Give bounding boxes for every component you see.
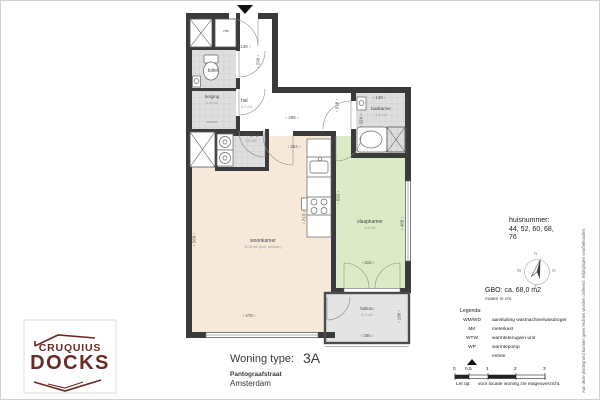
room-area: 30,8 m2 (incl. keuken) (223, 245, 303, 250)
woning-type-label: Woning type: (230, 353, 294, 365)
room-area: 8,0 m2 (241, 105, 271, 110)
legend-row: WTW warmteterugwin-unit (456, 334, 584, 343)
floorplan-sheet: hal 8,0 m2 toilet mk berging 1,4 m2 wm/w… (0, 0, 600, 400)
huisnummer-block: huisnummer: 44, 52, 60, 68, 76 (509, 217, 583, 243)
legend-row: WM/WD aansluiting wasmachine/wasdroger (456, 316, 584, 325)
dim-slaapkamer-bottom: 316 (353, 260, 383, 265)
dim-woonkamer-top: 252 (279, 144, 309, 149)
legend: Legenda: WM/WD aansluiting wasmachine/wa… (456, 308, 584, 361)
room-label-hal: hal 8,0 m2 (241, 98, 271, 110)
logo-line2: DOCKS (27, 352, 113, 375)
legend-title: Legenda: (460, 308, 584, 314)
room-name: toilet (198, 68, 228, 75)
note-text: voor locatie woning zie etageoverzicht. (478, 382, 560, 387)
room-label-toilet: toilet (198, 68, 228, 75)
room-area: 1,4 m2 (192, 101, 232, 106)
room-area: 5,2 m2 (337, 313, 397, 318)
room-label-berging2: berging 2,4 m2 (235, 132, 267, 144)
maten-text: maten in cm. (485, 297, 512, 302)
room-label-balkon: balkon 5,2 m2 (337, 306, 397, 318)
dim-balkon-height: 180 (397, 302, 402, 332)
disclaimer-text: Aan deze plattegrond kunnen geen rechten… (581, 141, 586, 393)
compass-icon (525, 258, 550, 284)
gbo-text: GBO: ca. 68,0 m2 (485, 287, 541, 294)
huisnummer-numbers: 76 (509, 234, 583, 243)
entree-arrow-icon (237, 5, 253, 14)
dim-badkamer-width: 139 (364, 95, 394, 100)
dim-woonkamer-left: 560 (192, 225, 197, 255)
room-label-mk: mk (216, 28, 236, 35)
dim-badkamer-height: 310 (359, 106, 364, 136)
huisnummer-numbers: 44, 52, 60, 68, (509, 226, 583, 235)
scale-tick-label: 1 (486, 367, 489, 372)
scale-tick-label: 0,5 (465, 367, 472, 372)
scale-tick-label: 2 (514, 367, 517, 372)
legend-note: Let op: voor locatie woning zie etageove… (456, 382, 560, 387)
room-label-berging1: berging 1,4 m2 (192, 94, 232, 106)
room-label-badkamer: badkamer 4,1 m2 (359, 106, 403, 118)
room-area: 9,6 m2 (336, 226, 404, 231)
street-name: Pantograafstraat (230, 371, 282, 378)
dim-balkon-width: 285 (352, 333, 382, 338)
legend-row: MK meterkast (456, 325, 584, 334)
entree-arrow-icon (467, 354, 477, 365)
scale-bar (455, 373, 545, 380)
dim-slaapkamer-right: 488 (400, 209, 405, 239)
woning-type-value: 3A (303, 350, 320, 366)
room-name: mk (216, 28, 236, 35)
city-name: Amsterdam (230, 379, 271, 388)
room-label-woonkamer: woonkamer 30,8 m2 (incl. keuken) (223, 238, 303, 250)
kitchen-sink-icon (310, 161, 328, 173)
room-area: 4,1 m2 (359, 113, 403, 118)
legend-row-entree: entree (456, 352, 584, 361)
compass-east-label: O (552, 268, 556, 273)
compass-west-label: W (517, 268, 521, 273)
room-area: 2,4 m2 (235, 139, 267, 144)
legend-row: WP warmtepomp (456, 343, 584, 352)
washer-dryer-icon (217, 134, 233, 166)
shower-icon (387, 127, 405, 152)
dim-woonkamer-bottom: 478 (234, 313, 264, 318)
room-label-slaapkamer: slaapkamer 9,6 m2 (336, 219, 404, 231)
dim-entry-height: 290 (256, 47, 261, 77)
scale-tick-label: 0 (453, 367, 456, 372)
room-sublabel-wmwd: wm/wd (192, 120, 232, 125)
dim-kitchen-wall: 713 (302, 203, 307, 233)
compass-north-label: N (534, 251, 537, 256)
huisnummer-label: huisnummer: (509, 217, 583, 226)
scale-tick-label: 3 (543, 367, 546, 372)
dim-hal-side: 318 (335, 91, 340, 121)
dim-hal-width: 496 (277, 115, 307, 120)
dim-slaapkamer-left: 592 (336, 183, 341, 213)
note-label: Let op: (456, 382, 471, 387)
dim-entry-width: 136 (229, 44, 259, 49)
